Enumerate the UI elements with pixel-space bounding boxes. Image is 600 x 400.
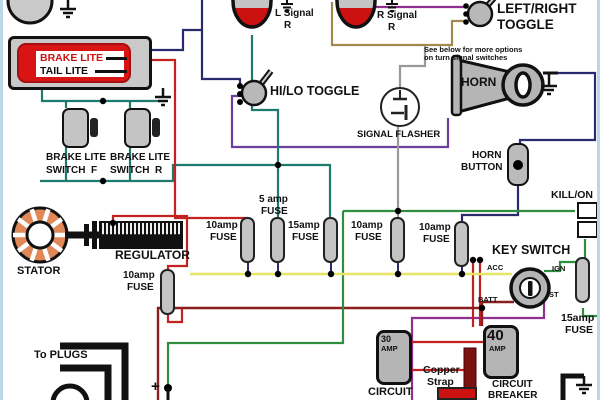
ignition-coil [53, 386, 87, 400]
breaker30-amp-unit: AMP [381, 345, 398, 353]
horn-label: HORN [461, 76, 496, 88]
tail-lite-label: TAIL LITE [40, 66, 88, 77]
brake-switch-f-plunger [90, 118, 98, 137]
kill-switch-top [577, 202, 598, 219]
headlight-lamp [8, 0, 52, 23]
fuse3-label-1: 15amp [288, 221, 320, 231]
fuse3-label-2: FUSE [292, 233, 319, 243]
fuse-left-label-1: 10amp [123, 271, 155, 281]
ign-label: IGN [552, 265, 565, 273]
l-signal-sub: R [284, 21, 291, 31]
breaker40-amp-value: 40 [487, 328, 504, 343]
kill-switch-bottom [577, 221, 598, 238]
brake-switch-r-body [124, 108, 151, 148]
hilo-terminal-3 [237, 99, 243, 105]
fuse-right-label-2: FUSE [565, 325, 593, 336]
to-plugs-label: To PLUGS [34, 350, 88, 361]
fuse1-label-2: FUSE [210, 233, 237, 243]
lr-toggle-body [468, 2, 492, 26]
lr-toggle-label-2: TOGGLE [497, 18, 554, 32]
wire-brakebox-navy [150, 30, 202, 50]
wiring-diagram: BRAKE LITE TAIL LITE L Signal R R Signal… [0, 0, 600, 400]
breaker30-label: CIRCUIT [368, 387, 413, 398]
wire-hornbutton-navy [462, 186, 518, 224]
lr-terminal-3 [463, 19, 469, 25]
st-label: ST [549, 291, 559, 299]
stator-center [27, 222, 53, 248]
fuse-5amp [270, 217, 285, 263]
brake-switch-r-plunger [152, 118, 160, 137]
breaker40-label-2: BREAKER [488, 391, 537, 400]
hilo-toggle-label: HI/LO TOGGLE [270, 85, 359, 98]
acc-label: ACC [487, 264, 503, 272]
copper-strap-label-1: Copper [423, 365, 460, 376]
brake-lite-lead [106, 57, 127, 60]
fuse-left-label-2: FUSE [127, 283, 154, 293]
wire-lsignal-teal [252, 35, 278, 218]
key-switch-slot [528, 281, 533, 296]
hilo-terminal-1 [237, 83, 243, 89]
fuse-15amp-1 [323, 217, 338, 263]
fuse-10amp-2 [390, 217, 405, 263]
horn-bell-bar [452, 56, 461, 115]
hilo-toggle-body [242, 81, 266, 105]
signal-flasher-label: SIGNAL FLASHER [357, 130, 440, 140]
wire-flasher-top-gray [400, 46, 425, 90]
brake-switch-r-label-1: BRAKE LITE [110, 153, 170, 163]
brake-switch-f-label-2: SWITCH F [46, 166, 97, 176]
breaker30-amp-value: 30 [381, 335, 391, 344]
fuse-10amp-1 [240, 217, 255, 263]
shaft-coupler-2 [92, 221, 97, 249]
wire-batt-maroon [158, 302, 514, 400]
lr-toggle-note-2: on turn signal switches [424, 54, 507, 62]
r-signal-sub: R [388, 23, 395, 33]
r-signal-label: R Signal [377, 11, 417, 21]
brake-switch-r-label-2: SWITCH R [110, 166, 162, 176]
left-edge-strip [0, 0, 3, 400]
fuse2-label-1: 5 amp [259, 195, 288, 205]
brake-lite-label: BRAKE LITE [40, 53, 103, 64]
breaker40-label-1: CIRCUIT [492, 380, 533, 390]
batt-label: BATT [478, 296, 497, 304]
wire-brakebox-red [150, 60, 248, 218]
l-signal-label: L Signal [275, 9, 314, 19]
fuse-10amp-left [160, 269, 175, 315]
lr-terminal-1 [463, 3, 469, 9]
horn-button-label-2: BUTTON [461, 163, 502, 173]
regulator-body [100, 235, 182, 248]
hilo-terminal-2 [237, 91, 243, 97]
brake-switch-f-label-1: BRAKE LITE [46, 153, 106, 163]
key-switch-label: KEY SWITCH [492, 244, 570, 257]
plus-terminal-label: + [151, 379, 160, 394]
fuse4-label-2: FUSE [355, 233, 382, 243]
shaft-coupler-1 [84, 224, 89, 246]
fuse-right-label-1: 15amp [561, 313, 594, 324]
fuse-10amp-3 [454, 221, 469, 267]
kill-on-label: KILL/ON [551, 190, 593, 201]
tail-lite-lead [95, 70, 127, 73]
fuse4-label-1: 10amp [351, 221, 383, 231]
fuse-15amp-right [575, 257, 590, 303]
lr-toggle-label-1: LEFT/RIGHT [497, 2, 577, 16]
ground-icon-headlight [60, 0, 76, 17]
brake-switch-f-body [62, 108, 89, 148]
fuse5-label-1: 10amp [419, 223, 451, 233]
horn-button-dot [513, 160, 523, 170]
battery-terminal-block [437, 387, 477, 400]
ground-icon-taillight [155, 88, 171, 105]
horn-coil-center [516, 73, 530, 97]
fuse1-label-1: 10amp [206, 221, 238, 231]
lr-terminal-2 [463, 11, 469, 17]
breaker40-amp-unit: AMP [489, 345, 506, 353]
regulator-label: REGULATOR [115, 249, 190, 261]
horn-button-label-1: HORN [472, 151, 501, 161]
copper-strap-label-2: Strap [427, 377, 454, 388]
fuse2-label-2: FUSE [261, 207, 288, 217]
ground-icon-bottom-right [576, 376, 592, 393]
stator-label: STATOR [17, 266, 60, 277]
fuse5-label-2: FUSE [423, 235, 450, 245]
